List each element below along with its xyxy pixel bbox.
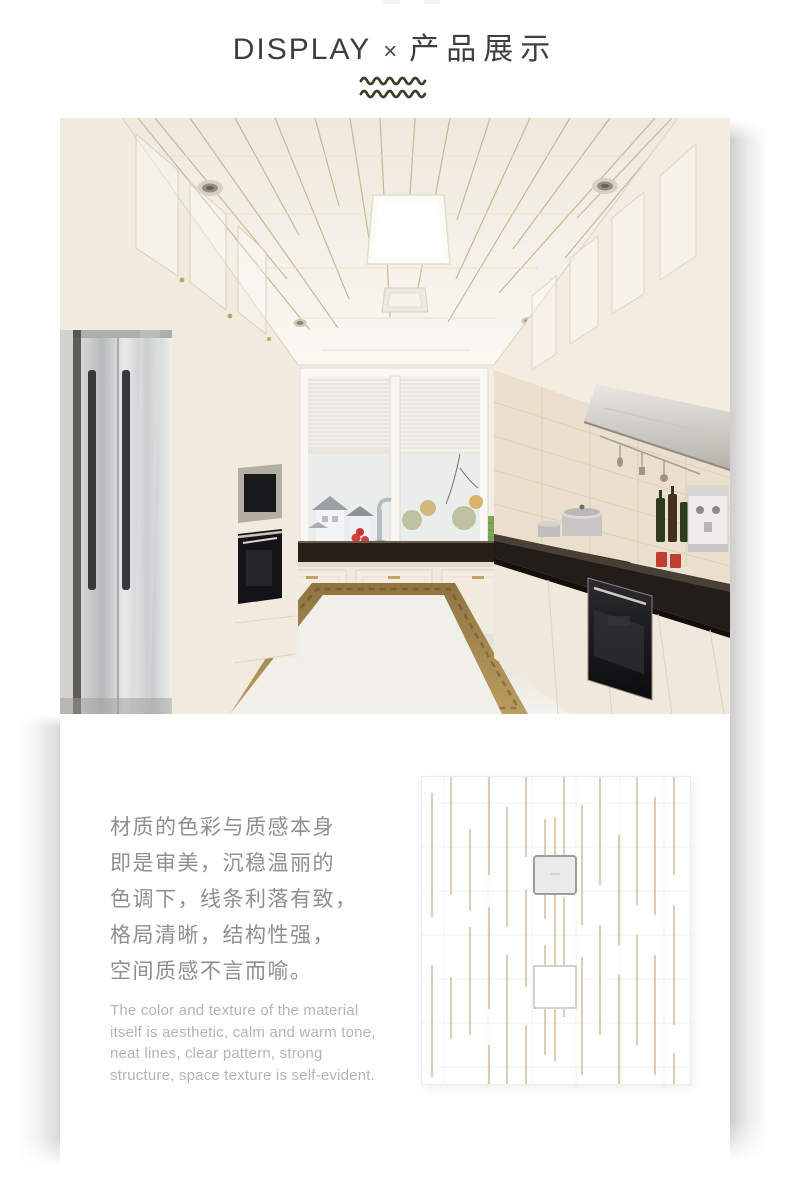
panel-texture-swatch: [421, 776, 691, 1085]
section-title-zh: 产品展示: [409, 33, 557, 66]
en-line: The color and texture of the material: [110, 1000, 376, 1022]
zh-line: 材质的色彩与质感本身: [110, 810, 358, 846]
description-en: The color and texture of the material it…: [110, 1000, 376, 1086]
wave-decoration-icon: [358, 74, 428, 102]
vent-square-icon: [534, 856, 576, 894]
top-edge-artifact: [383, 0, 400, 4]
zh-line: 即是审美，沉稳温丽的: [110, 846, 358, 882]
section-title-en: DISPLAY: [233, 33, 372, 66]
en-line: structure, space texture is self-evident…: [110, 1065, 376, 1087]
led-panel-square-icon: [534, 966, 576, 1008]
section-title: DISPLAY×产品展示: [0, 24, 790, 68]
page-edge-shadow-right: [730, 120, 774, 1162]
page-edge-shadow-left: [14, 714, 60, 1166]
en-line: itself is aesthetic, calm and warm tone,: [110, 1022, 376, 1044]
zh-line: 格局清晰，结构性强，: [110, 918, 358, 954]
zh-line: 空间质感不言而喻。: [110, 954, 358, 990]
en-line: neat lines, clear pattern, strong: [110, 1043, 376, 1065]
description-zh: 材质的色彩与质感本身 即是审美，沉稳温丽的 色调下，线条利落有致， 格局清晰，结…: [110, 810, 358, 990]
top-edge-artifact: [424, 0, 440, 4]
zh-line: 色调下，线条利落有致，: [110, 882, 358, 918]
kitchen-render-image: [60, 118, 730, 714]
section-title-separator: ×: [383, 38, 397, 65]
product-display-page: DISPLAY×产品展示: [0, 0, 790, 1179]
